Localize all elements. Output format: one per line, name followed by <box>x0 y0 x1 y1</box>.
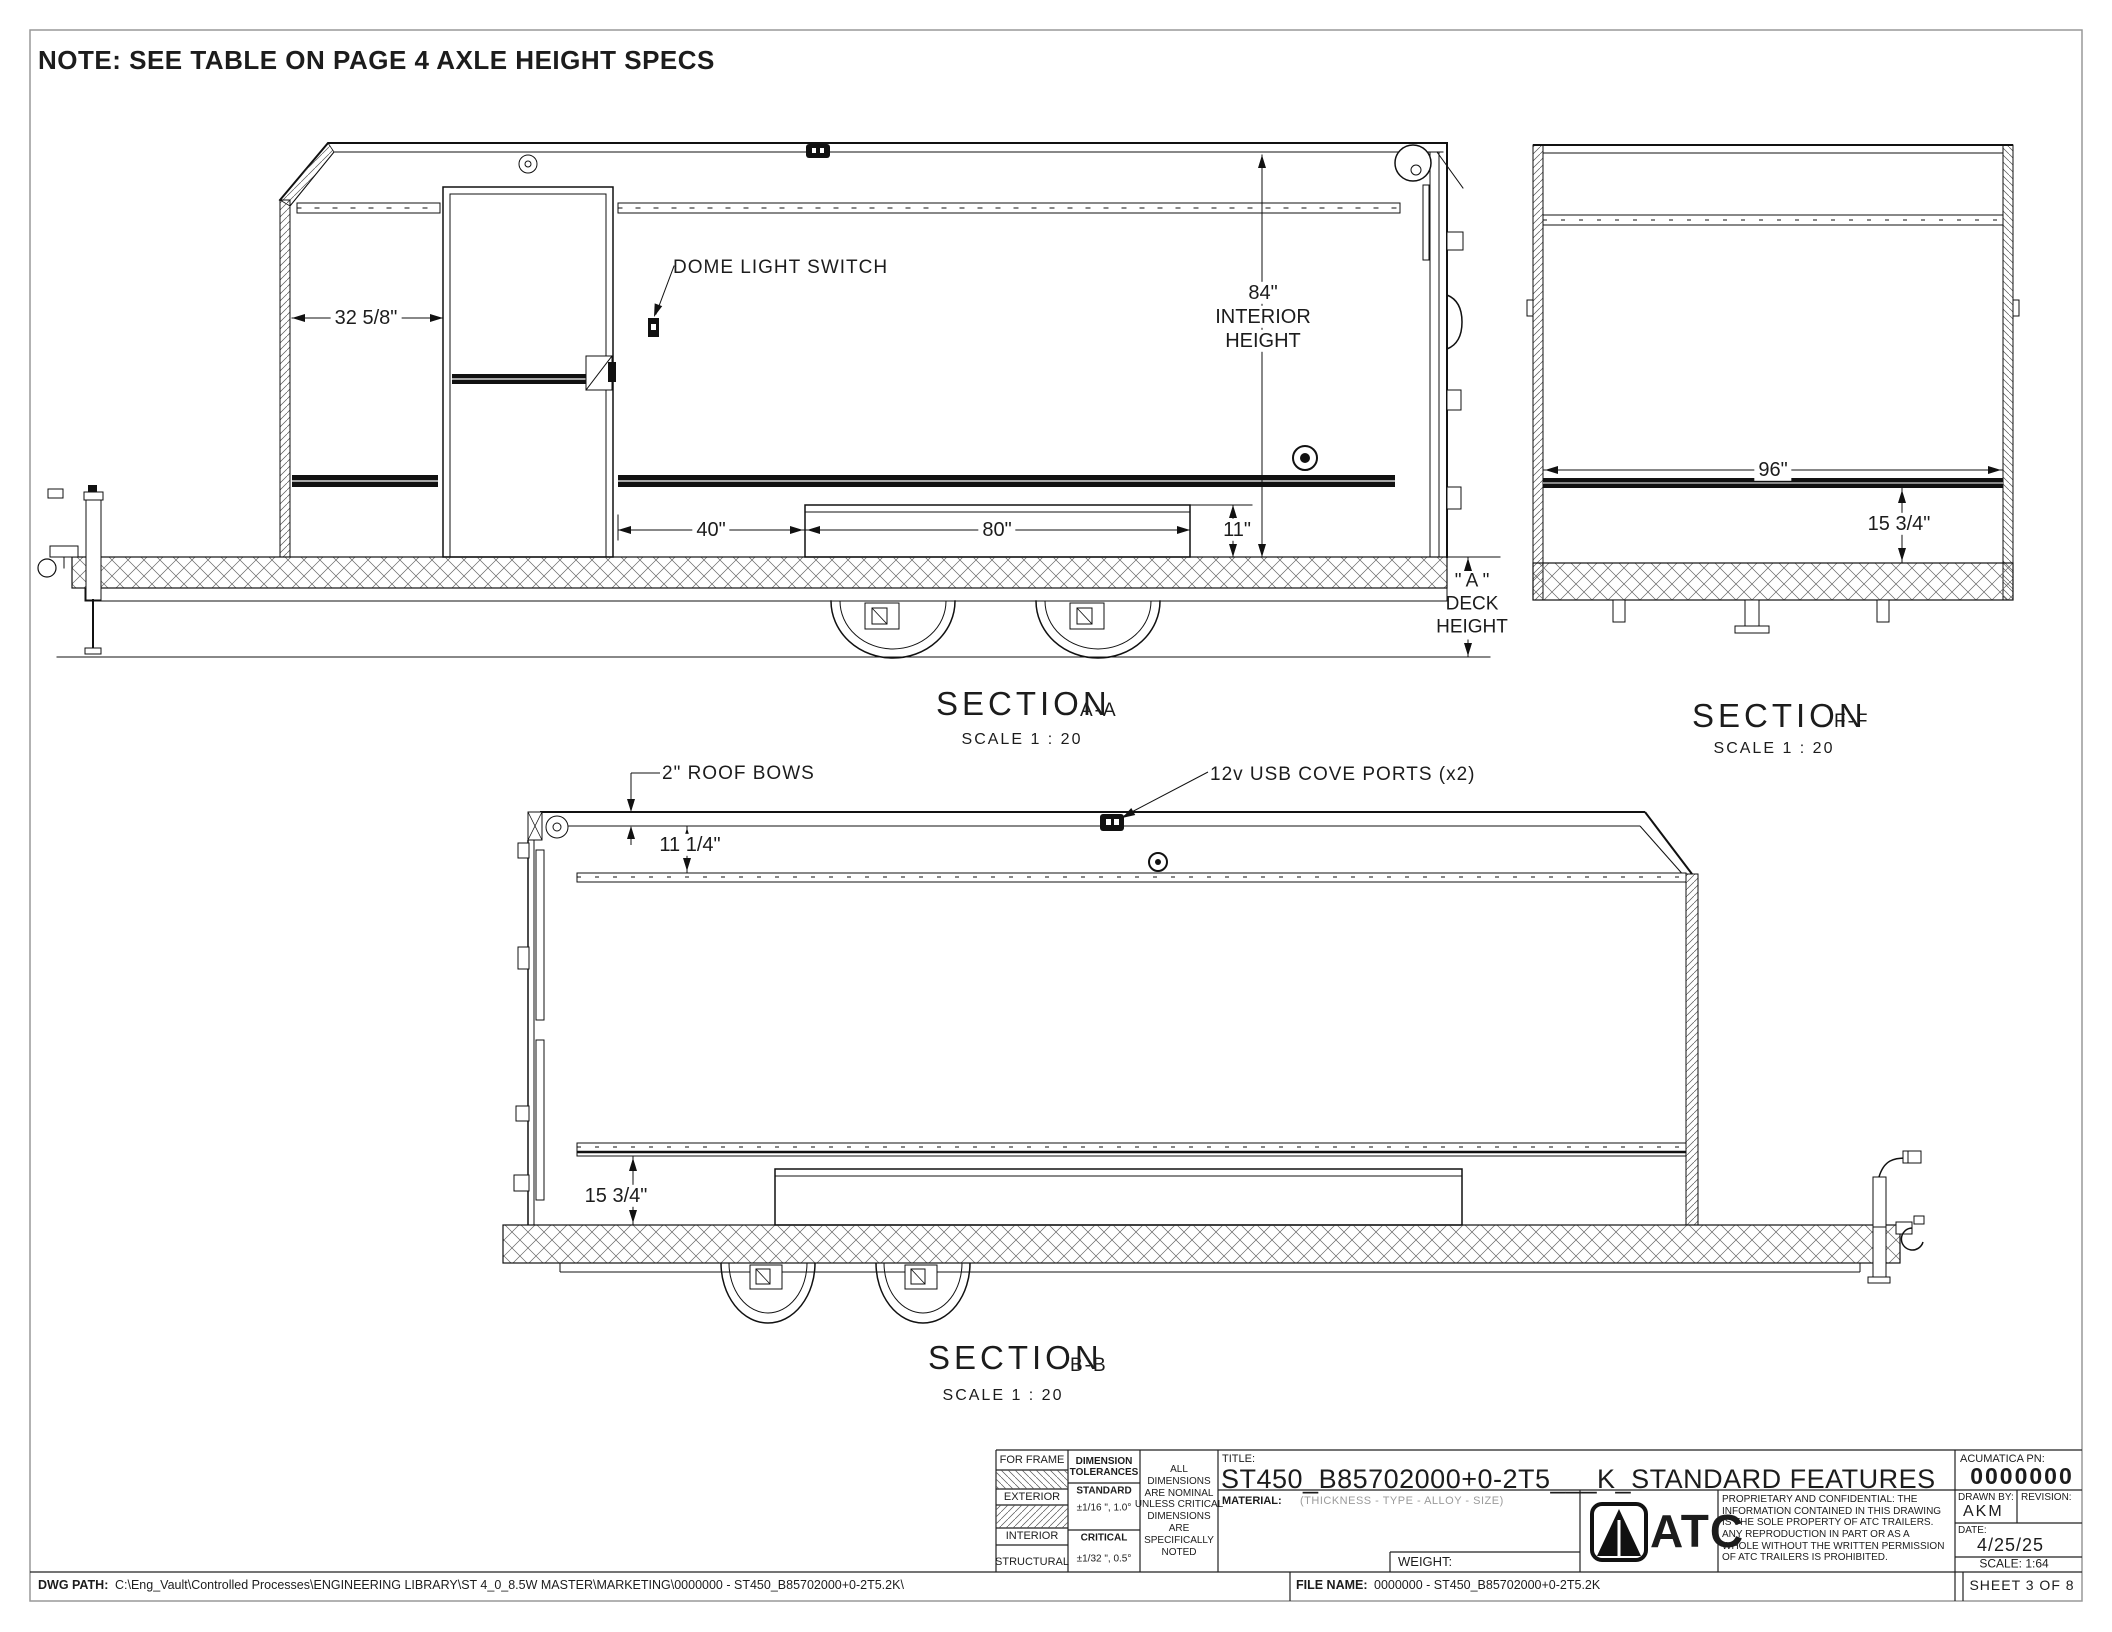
weight-label: WEIGHT: <box>1398 1555 1452 1570</box>
dim-15-34-ff: 15 3/4" <box>1864 513 1935 535</box>
exterior-label: EXTERIOR <box>1002 1491 1062 1503</box>
material-label: MATERIAL: <box>1222 1495 1282 1507</box>
atc-logo-icon <box>1592 1504 1646 1560</box>
deck-height-l2: DECK <box>1446 593 1499 614</box>
deck-height-l3: HEIGHT <box>1436 616 1508 637</box>
dim-11-14: 11 1/4" <box>655 834 724 856</box>
standard-label: STANDARD <box>1076 1485 1131 1496</box>
revision-label: REVISION: <box>2021 1492 2072 1503</box>
date-value: 4/25/25 <box>1977 1535 2044 1555</box>
dim-80: 80" <box>978 519 1015 541</box>
usb-port-icon <box>1100 814 1124 831</box>
roof-bows-label: 2" ROOF BOWS <box>662 763 815 784</box>
deck-height-l1: " A " <box>1455 570 1490 591</box>
dim-front-to-door: 32 5/8" <box>331 307 402 329</box>
sheet-scale-label: SCALE: 1:64 <box>1979 1557 2048 1570</box>
dim-interior-height: 84" <box>1244 282 1281 304</box>
section-bb-scale: SCALE 1 : 20 <box>943 1387 1064 1405</box>
drawn-by-value: AKM <box>1963 1503 2004 1521</box>
dome-light-switch-label: DOME LIGHT SWITCH <box>673 257 888 278</box>
dwg-path-label: DWG PATH: <box>38 1578 108 1592</box>
file-name-value: 0000000 - ST450_B85702000+0-2T5.2K <box>1374 1578 1600 1592</box>
dim-interior-height-l3: HEIGHT <box>1221 330 1305 352</box>
critical-label: CRITICAL <box>1081 1532 1128 1543</box>
structural-label: STRUCTURAL <box>995 1556 1069 1568</box>
dim-96: 96" <box>1754 459 1791 481</box>
standard-tolerance: ±1/16 ", 1.0° <box>1077 1502 1132 1513</box>
nominal-note: ALL DIMENSIONS ARE NOMINAL UNLESS CRITIC… <box>1135 1464 1223 1558</box>
section-ff-view: F-F <box>1834 711 1870 732</box>
critical-tolerance: ±1/32 ", 0.5° <box>1077 1553 1132 1564</box>
interior-label: INTERIOR <box>1004 1530 1061 1542</box>
section-bb-view: B-B <box>1070 1355 1108 1376</box>
material-value: (THICKNESS - TYPE - ALLOY - SIZE) <box>1300 1495 1504 1507</box>
sheet-number: SHEET 3 OF 8 <box>1969 1578 2074 1594</box>
section-aa-scale: SCALE 1 : 20 <box>962 731 1083 749</box>
file-name-label: FILE NAME: <box>1296 1578 1368 1592</box>
usb-port-icon <box>806 144 830 158</box>
drawing-title: ST450_B85702000+0-2T5___K_STANDARD FEATU… <box>1221 1464 1936 1494</box>
dim-11: 11" <box>1219 519 1255 541</box>
usb-ports-label: 12v USB COVE PORTS (x2) <box>1210 764 1476 785</box>
drawing-sheet: NOTE: SEE TABLE ON PAGE 4 AXLE HEIGHT SP… <box>0 0 2112 1632</box>
for-frame-label: FOR FRAME <box>1000 1454 1065 1466</box>
dim-interior-height-l2: INTERIOR <box>1211 306 1315 328</box>
dim-15-34-bb: 15 3/4" <box>581 1185 652 1207</box>
section-aa-view: A-A <box>1080 700 1118 721</box>
section-ff-drawing <box>1527 145 2019 633</box>
dome-light-switch-icon <box>648 318 659 337</box>
dwg-path-value: C:\Eng_Vault\Controlled Processes\ENGINE… <box>115 1578 904 1592</box>
acumatica-pn-value: 0000000 <box>1970 1464 2074 1490</box>
dim-40: 40" <box>692 519 729 541</box>
drawn-by-label: DRAWN BY: <box>1958 1492 2014 1503</box>
section-ff-scale: SCALE 1 : 20 <box>1714 740 1835 758</box>
note-banner: NOTE: SEE TABLE ON PAGE 4 AXLE HEIGHT SP… <box>38 46 715 75</box>
proprietary-note: PROPRIETARY AND CONFIDENTIAL: THE INFORM… <box>1722 1494 1944 1564</box>
section-aa-drawing <box>38 143 1500 658</box>
tolerances-header: DIMENSION TOLERANCES <box>1070 1456 1139 1478</box>
